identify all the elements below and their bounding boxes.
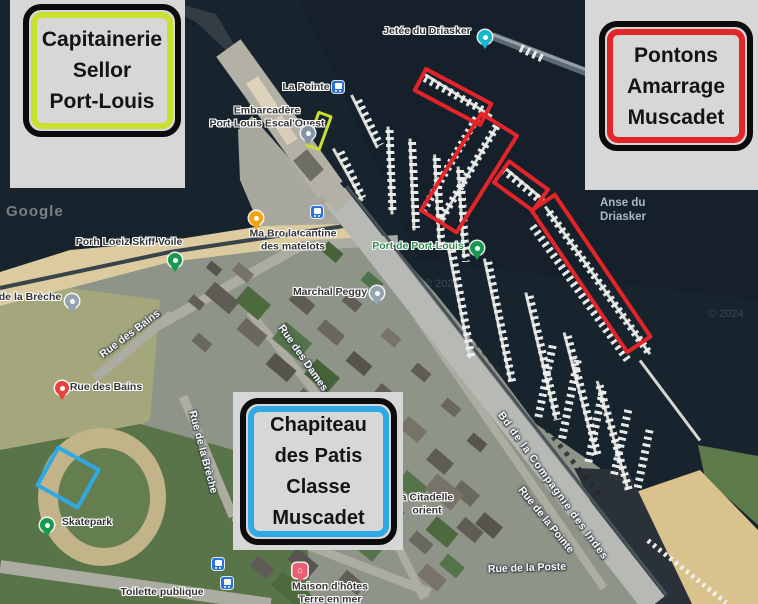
porh-loeiz-skiff-voile-label[interactable]: Porh Loeiz Skiff Voile — [76, 236, 183, 249]
copyright-watermark: © 2024 — [424, 278, 460, 290]
toilette-publique-label[interactable]: Toilette publique — [120, 586, 203, 599]
breche-pin[interactable] — [65, 294, 79, 308]
rue-des-bains-poi-label[interactable]: Rue des Bains — [70, 381, 142, 394]
citadelle-label[interactable]: a Citadelleorient — [401, 492, 454, 517]
skatepark-pin[interactable] — [40, 518, 54, 532]
callout-line: Muscadet — [613, 102, 739, 133]
transit-icon[interactable] — [221, 577, 233, 589]
callout-line: Amarrage — [613, 71, 739, 102]
de-la-breche-label[interactable]: de la Brèche — [0, 291, 61, 304]
jetee-du-driasker-label[interactable]: Jetée du Driasker — [383, 25, 471, 38]
lodging-pin[interactable]: ⌂ — [293, 563, 308, 578]
callout-line: des Patis — [254, 441, 383, 472]
legend-panel-capitainerie: Capitainerie Sellor Port-Louis — [10, 0, 185, 188]
skatepark-label[interactable]: Skatepark — [62, 516, 112, 529]
la-pointe-label[interactable]: La Pointe — [282, 81, 329, 94]
transit-icon[interactable] — [332, 81, 344, 93]
ferry-pin[interactable] — [301, 126, 315, 140]
sailing-pin[interactable] — [168, 253, 182, 267]
callout-line: Muscadet — [254, 503, 383, 534]
callout-line: Classe — [254, 472, 383, 503]
rue-des-bains-pin[interactable] — [55, 381, 69, 395]
port-de-port-louis-label[interactable]: Port de Port-Louis — [372, 240, 464, 253]
restaurant-pin[interactable] — [249, 211, 263, 225]
transit-icon[interactable] — [311, 206, 323, 218]
copyright-watermark: © 2024 — [708, 308, 744, 320]
legend-panel-pontons: Pontons Amarrage Muscadet — [585, 0, 758, 190]
map-screenshot: Anse duDriaskerGoogle© 2024© 2024Rue des… — [0, 0, 758, 604]
legend-panel-chapiteau: Chapiteau des Patis Classe Muscadet — [233, 392, 403, 550]
google-watermark: Google — [6, 203, 64, 220]
callout-line: Chapiteau — [254, 410, 383, 441]
marchal-peggy-label[interactable]: Marchal Peggy — [293, 286, 367, 299]
marina-pin[interactable] — [470, 241, 484, 255]
callout-line: Pontons — [613, 40, 739, 71]
photo-pin[interactable] — [478, 30, 492, 44]
anse-du-driasker-label: Anse duDriasker — [600, 197, 646, 224]
maison-dhotes-label[interactable]: Maison d'hôtesTerre en mer — [292, 581, 368, 604]
callout-line: Sellor — [37, 55, 167, 86]
callout-line: Capitainerie — [37, 24, 167, 55]
callout-line: Port-Louis — [37, 86, 167, 117]
marchal-peggy-pin[interactable] — [370, 286, 384, 300]
ma-bro-cantine-label[interactable]: Ma Bro la cantinedes matelots — [250, 228, 337, 253]
transit-icon[interactable] — [212, 558, 224, 570]
pontons-callout-box: Pontons Amarrage Muscadet — [599, 21, 753, 151]
chapiteau-callout-box: Chapiteau des Patis Classe Muscadet — [240, 398, 397, 545]
capitainerie-callout-box: Capitainerie Sellor Port-Louis — [23, 4, 181, 137]
